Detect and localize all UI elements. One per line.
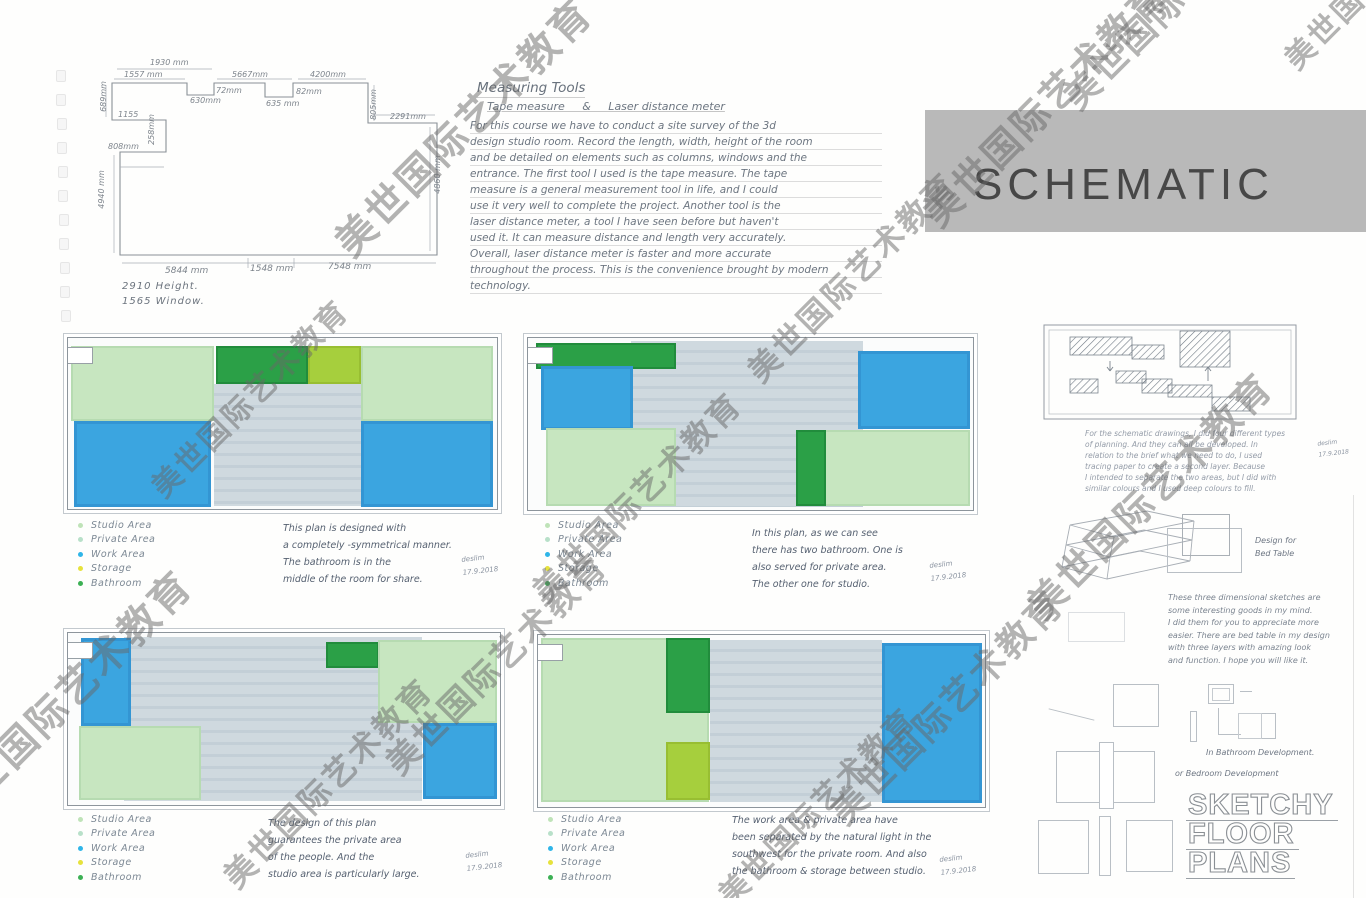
legend-dot [78, 581, 83, 586]
signature-name: deslim [461, 554, 485, 564]
plan-1-note: This plan is designed with a completely … [283, 520, 463, 588]
legend-dot [548, 831, 553, 836]
dim-label: 4200mm [310, 70, 346, 79]
legend-label: Storage [91, 563, 132, 574]
legend-dot [78, 537, 83, 542]
furniture-sketch-line [1049, 708, 1095, 720]
plan-3-signature: deslim17.9.2018 [465, 846, 503, 875]
title-line: SKETCHY [1186, 792, 1338, 821]
region-bathroom [326, 642, 379, 668]
legend-dot [548, 817, 553, 822]
dim-label: 808mm [108, 142, 139, 151]
legend-label: Work Area [91, 549, 145, 560]
legend-item: Bathroom [78, 870, 155, 885]
hatched-plan-sketch [1040, 323, 1330, 423]
region-studio [79, 726, 201, 800]
legend-label: Storage [91, 857, 132, 868]
furniture-sketch-nested-inner [1212, 688, 1230, 701]
dim-label: 7548 mm [328, 262, 371, 272]
dim-label: 1548 mm [250, 264, 293, 274]
bed-table-plan-sketch-inner [1182, 514, 1230, 556]
dim-label: 630mm [190, 96, 221, 105]
legend-label: Bathroom [91, 872, 142, 883]
dim-label: 5667mm [232, 70, 268, 79]
signature-name: deslim [929, 560, 953, 570]
legend-dot [548, 846, 553, 851]
legend-item: Private Area [78, 827, 155, 842]
page-edge-line [1353, 495, 1354, 898]
furniture-sketch-bar [1099, 816, 1111, 876]
legend-label: Work Area [561, 843, 615, 854]
bedroom-development-caption: or Bedroom Development [1175, 768, 1278, 781]
watermark-text: 美世国际艺术教育 [1272, 0, 1366, 78]
plan-2-signature: deslim17.9.2018 [929, 556, 967, 585]
faint-rect-sketch [1068, 612, 1125, 642]
bathroom-development-caption: In Bathroom Development. [1206, 747, 1314, 760]
dim-label: 2291mm [390, 112, 426, 121]
signature-name: deslim [465, 850, 489, 860]
legend-plan-3: Studio Area Private Area Work Area Stora… [78, 812, 155, 885]
survey-window-note: 1565 Window. [122, 296, 205, 307]
dim-label: 805mm [369, 89, 378, 120]
measuring-tools-body: For this course we have to conduct a sit… [470, 118, 882, 294]
binding-mark [61, 310, 71, 322]
survey-height-note: 2910 Height. [122, 281, 199, 292]
dim-label: 1557 mm [124, 70, 163, 79]
legend-item: Storage [78, 856, 155, 871]
legend-item: Studio Area [548, 812, 625, 827]
legend-dot [545, 523, 550, 528]
paragraph-signature: deslim 17.9.2018 [1317, 436, 1350, 461]
legend-label: Studio Area [561, 814, 622, 825]
signature-date: 17.9.2018 [940, 865, 976, 877]
signature-date: 17.9.2018 [466, 861, 502, 873]
furniture-sketch-dash [1240, 691, 1252, 692]
legend-label: Private Area [561, 828, 625, 839]
legend-label: Studio Area [91, 520, 152, 531]
legend-item: Work Area [78, 841, 155, 856]
entrance-notch [67, 347, 93, 364]
dim-label: 258mm [147, 114, 156, 145]
furniture-sketch-bar [1190, 711, 1197, 742]
legend-label: Bathroom [561, 872, 612, 883]
plan-4-signature: deslim17.9.2018 [939, 850, 977, 879]
legend-item: Work Area [548, 841, 625, 856]
bed-table-label: Design for Bed Table [1255, 535, 1296, 561]
legend-dot [548, 875, 553, 880]
signature-date: 17.9.2018 [930, 571, 966, 583]
legend-dot [78, 831, 83, 836]
legend-item: Studio Area [78, 812, 155, 827]
legend-dot [78, 566, 83, 571]
legend-item: Work Area [78, 547, 155, 562]
legend-label: Private Area [91, 534, 155, 545]
legend-label: Studio Area [91, 814, 152, 825]
legend-item: Studio Area [78, 518, 155, 533]
dim-label: 689mm [99, 81, 108, 112]
dim-label: 72mm [216, 86, 242, 95]
region-private [361, 346, 493, 421]
region-work [541, 366, 633, 430]
entrance-notch [527, 347, 553, 364]
furniture-sketch-square [1038, 820, 1089, 874]
legend-item: Private Area [548, 827, 625, 842]
legend-dot [78, 817, 83, 822]
legend-dot [78, 552, 83, 557]
title-line: PLANS [1186, 850, 1295, 879]
signature-date: 17.9.2018 [462, 565, 498, 577]
dim-label: 635 mm [266, 99, 299, 108]
legend-label: Private Area [91, 828, 155, 839]
legend-item: Bathroom [548, 870, 625, 885]
furniture-sketch-band [1099, 742, 1114, 809]
signature-name: deslim [939, 854, 963, 864]
region-bathroom [796, 430, 826, 506]
dim-label: 82mm [296, 87, 322, 96]
title-line: FLOOR [1186, 821, 1299, 850]
furniture-sketch-square [1113, 684, 1159, 727]
dim-label: 1155 [118, 110, 138, 119]
plan-2-note: In this plan, as we can see there has tw… [752, 525, 942, 593]
legend-item: Storage [548, 856, 625, 871]
region-storage [666, 742, 710, 800]
region-work [361, 421, 493, 507]
legend-dot [78, 523, 83, 528]
furniture-sketch-square [1126, 820, 1173, 872]
legend-dot [548, 860, 553, 865]
sketchy-floor-plans-title: SKETCHY FLOOR PLANS [1186, 792, 1338, 879]
region-bathroom [666, 638, 710, 713]
legend-dot [545, 537, 550, 542]
sketches-paragraph: These three dimensional sketches are som… [1168, 592, 1358, 667]
legend-dot [78, 875, 83, 880]
region-work [858, 351, 970, 429]
legend-dot [78, 846, 83, 851]
sketchbook-page: 1930 mm 1557 mm 5667mm 4200mm 630mm 72mm… [0, 0, 1366, 898]
dim-label: 4940 mm [97, 170, 106, 209]
legend-label: Work Area [91, 843, 145, 854]
legend-label: Storage [561, 857, 602, 868]
plan-1-signature: deslim17.9.2018 [461, 550, 499, 579]
furniture-sketch-cabinet-divider [1238, 713, 1262, 739]
legend-item: Private Area [78, 533, 155, 548]
dim-label: 1930 mm [150, 58, 189, 67]
dim-label: 5844 mm [165, 266, 208, 276]
legend-dot [78, 860, 83, 865]
furniture-sketch-line [1218, 708, 1220, 735]
legend-plan-4: Studio Area Private Area Work Area Stora… [548, 812, 625, 885]
